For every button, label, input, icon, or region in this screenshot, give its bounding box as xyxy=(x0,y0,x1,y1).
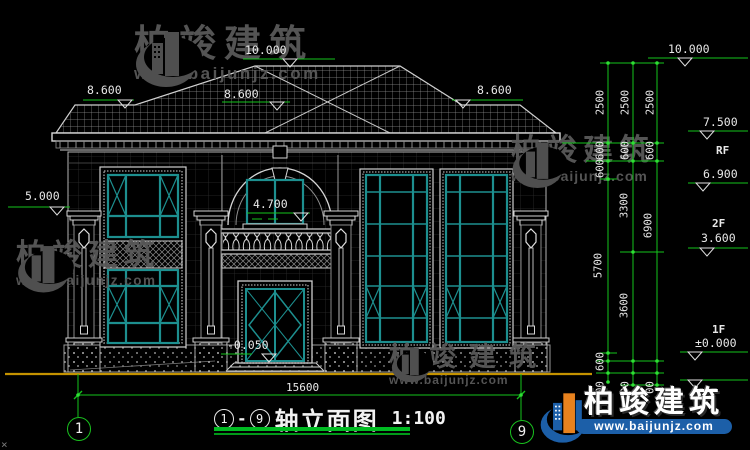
brand-logo-name: 柏竣建筑 xyxy=(584,388,724,418)
right-label-ridge: 10.000 xyxy=(668,43,710,56)
right-label-1f-level: ±0.000 xyxy=(695,337,737,350)
title-underline-thick xyxy=(214,427,410,431)
chain2-seg-3600: 3600 xyxy=(619,284,632,328)
cad-elevation-canvas: 柏竣建筑 www.baijunjz.com 柏竣建筑 www.baijunjz.… xyxy=(0,0,750,450)
right-label-roof-low: 6.900 xyxy=(703,168,738,181)
green-dimension-lines xyxy=(8,58,748,420)
elevation-label-eave-mid: 8.600 xyxy=(224,88,259,101)
chain2-seg-600: 600 xyxy=(620,129,633,173)
title-scale: 1:100 xyxy=(392,408,446,429)
chain3-seg-2500: 2500 xyxy=(645,81,658,125)
right-label-parapet: 7.500 xyxy=(703,116,738,129)
dimension-ticks xyxy=(76,61,659,397)
elevation-label-eave-left: 8.600 xyxy=(87,84,122,97)
axis-bubble-9: 9 xyxy=(510,420,534,444)
right-label-2f-level: 3.600 xyxy=(701,232,736,245)
right-label-1f: 1F xyxy=(712,323,725,336)
title-separator: - xyxy=(237,409,247,428)
elevation-label-balcony: 4.700 xyxy=(253,198,288,211)
chain3-seg-6900: 6900 xyxy=(643,204,656,248)
title-axis-end: 9 xyxy=(250,409,270,429)
brand-logo-site: www.baijunjz.com xyxy=(576,419,732,434)
chain1-seg-2500: 2500 xyxy=(595,81,608,125)
chain1-seg-600b: 600 xyxy=(595,147,608,191)
title-underline-thin xyxy=(214,433,410,435)
overall-width-dimension: 15600 xyxy=(286,381,319,394)
elevation-label-ridge: 10.000 xyxy=(245,44,287,57)
chain1-seg-5700: 5700 xyxy=(593,244,606,288)
right-label-2f: 2F xyxy=(712,217,725,230)
brand-logo-icon xyxy=(540,387,588,449)
elevation-label-pillar: 5.000 xyxy=(25,190,60,203)
right-label-rf: RF xyxy=(716,144,729,157)
elevation-triangle-markers xyxy=(50,58,714,388)
title-axis-start: 1 xyxy=(214,409,234,429)
elevation-label-entrance: -0.050 xyxy=(227,339,269,352)
elevation-label-eave-right: 8.600 xyxy=(477,84,512,97)
dimension-linework xyxy=(0,0,750,450)
chain2-seg-2500: 2500 xyxy=(620,81,633,125)
chain2-seg-3300: 3300 xyxy=(619,184,632,228)
brand-logo: 柏竣建筑 www.baijunjz.com xyxy=(540,385,750,450)
chain3-seg-600: 600 xyxy=(645,129,658,173)
axis-bubble-1: 1 xyxy=(67,417,91,441)
